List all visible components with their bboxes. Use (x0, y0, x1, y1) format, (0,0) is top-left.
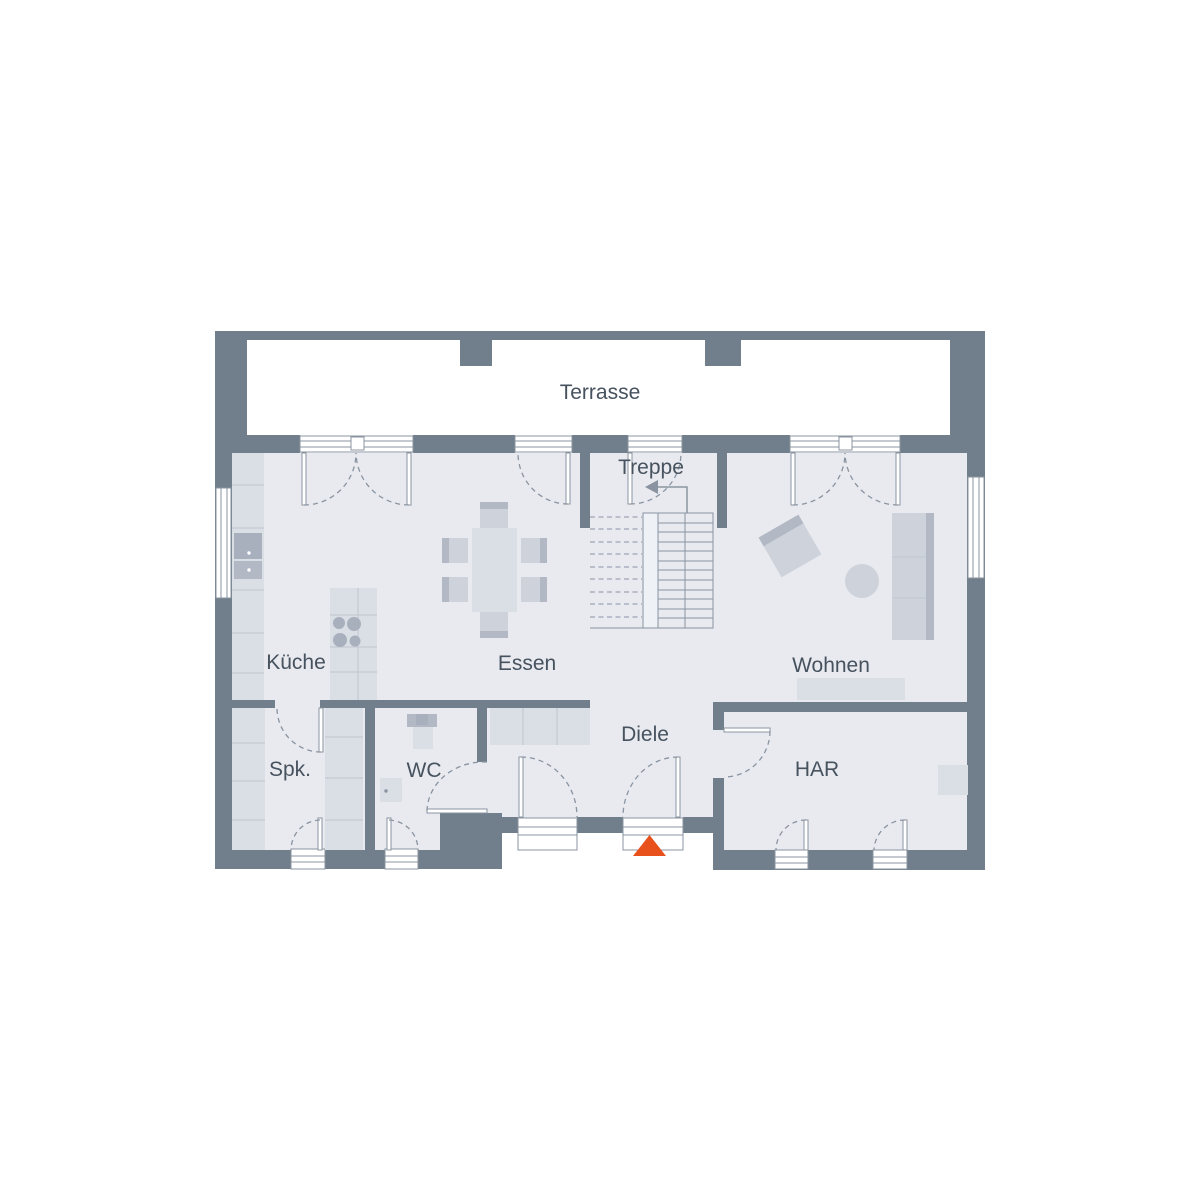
wall-kueche-spk-2 (320, 700, 590, 708)
diele-furniture (490, 708, 590, 745)
wall-kueche-spk-1 (215, 700, 275, 708)
spk-shelf-left (232, 708, 265, 850)
sofa (892, 513, 934, 640)
wall-stair-right (717, 453, 727, 528)
wall-north-5 (900, 435, 985, 453)
stair-middle-stringer (643, 513, 658, 628)
door-handle-icon (351, 437, 364, 450)
wall-north-4 (682, 435, 790, 453)
dining-table (472, 528, 517, 612)
wall-terrace-right (950, 331, 985, 453)
sideboard (797, 678, 905, 700)
wardrobe (490, 708, 590, 745)
door-handle-icon (839, 437, 852, 450)
window-west-kueche (216, 488, 231, 598)
wall-wohnen-har (713, 702, 985, 712)
room-label-treppe: Treppe (618, 456, 684, 479)
kitchen-island (330, 588, 377, 700)
wall-wc-diele (477, 708, 487, 762)
room-label-spk: Spk. (269, 758, 311, 781)
wall-north-1 (215, 435, 300, 453)
floor-plan-canvas: Terrasse Treppe Küche Essen Wohnen Spk. … (0, 0, 1200, 1200)
coffee-table (845, 564, 879, 598)
room-label-terrasse: Terrasse (560, 381, 641, 404)
wall-stair-left (580, 453, 590, 528)
wall-terrace-pillar-1 (460, 340, 492, 366)
dining-chair-top (480, 502, 508, 528)
wall-har-west-lower (713, 778, 724, 870)
dining-chair-bottom (480, 612, 508, 638)
wall-south-recessed-2 (577, 817, 623, 833)
wall-terrace-pillar-2 (705, 340, 741, 366)
wall-terrace-left (215, 331, 247, 453)
dining-chair-left-1 (442, 538, 468, 563)
washbasin (380, 778, 402, 802)
wall-har-west-upper (713, 702, 724, 730)
kitchen-sink (234, 533, 262, 559)
dining-chair-right-1 (521, 538, 547, 563)
har-appliance (938, 765, 968, 795)
dining-chair-left-2 (442, 577, 468, 602)
wall-south-har-block (713, 850, 985, 870)
room-label-har: HAR (795, 758, 839, 781)
room-label-wohnen: Wohnen (792, 654, 870, 677)
wall-south-recessed (502, 817, 518, 833)
wall-south-corner-chunk (440, 813, 502, 853)
wall-north-3 (572, 435, 628, 453)
room-label-essen: Essen (498, 652, 556, 675)
room-label-kueche: Küche (266, 651, 326, 674)
wall-spk-wc (365, 708, 375, 850)
room-label-diele: Diele (621, 723, 669, 746)
wall-terrace-top (247, 331, 950, 340)
spk-shelf-right (325, 708, 363, 850)
room-label-wc: WC (407, 759, 442, 782)
window-east-wohnen (968, 477, 984, 578)
floor-plan: Terrasse Treppe Küche Essen Wohnen Spk. … (0, 0, 1200, 1200)
wall-north-2 (413, 435, 515, 453)
dining-chair-right-2 (521, 577, 547, 602)
